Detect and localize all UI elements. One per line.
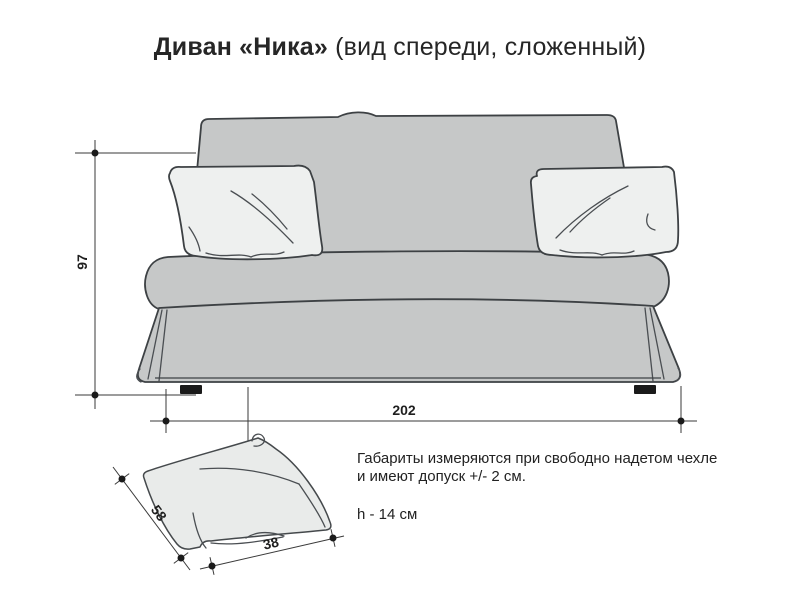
tolerance-note-line1: Габариты измеряются при свободно надетом… [357, 450, 717, 468]
sofa-skirt [138, 299, 680, 382]
pillow-height-note: h - 14 см [357, 506, 417, 523]
diagram-page: Диван «Ника» (вид спереди, сложенный) [0, 0, 800, 600]
sofa-foot-right [634, 385, 656, 394]
pillow-detail: 58 38 [113, 434, 344, 575]
left-pillow [169, 166, 322, 260]
right-pillow [531, 167, 678, 258]
tolerance-note-line2: и имеют допуск +/- 2 см. [357, 468, 717, 486]
sofa-foot-left [180, 385, 202, 394]
detail-pillow [144, 438, 331, 549]
width-dimension-label: 202 [392, 402, 416, 418]
height-dimension-label: 97 [74, 254, 90, 270]
pillow-width-label: 38 [261, 534, 280, 553]
tolerance-note: Габариты измеряются при свободно надетом… [357, 450, 717, 485]
width-dimension: 202 [150, 386, 697, 433]
sofa-front-view [137, 112, 681, 394]
